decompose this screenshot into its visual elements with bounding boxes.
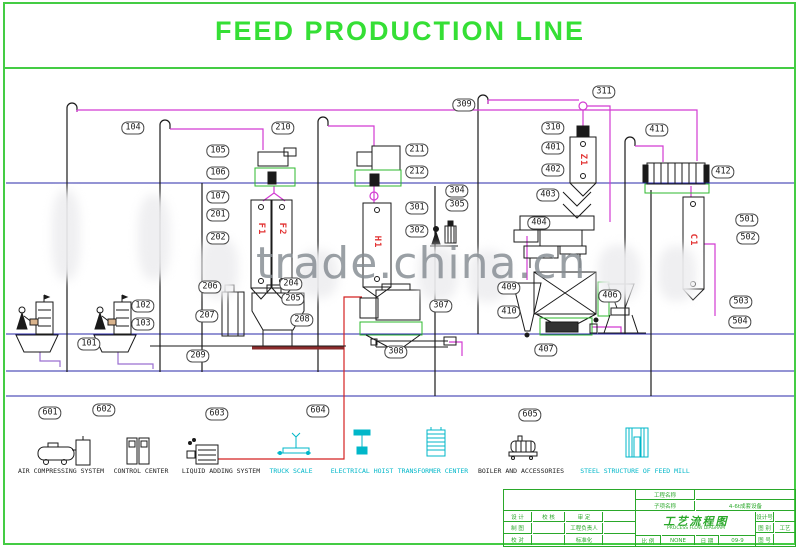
label-badge-211: 211 bbox=[405, 144, 428, 157]
sign-cell bbox=[533, 535, 565, 545]
sign-cell bbox=[604, 523, 635, 533]
label-badge-310: 310 bbox=[541, 122, 564, 135]
bin-tag-F1: F1 bbox=[256, 223, 266, 236]
label-badge-401: 401 bbox=[541, 142, 564, 155]
equipment-label-electrical-hoist: ELECTRICAL HOIST bbox=[331, 467, 394, 475]
page-title: FEED PRODUCTION LINE bbox=[0, 16, 800, 47]
label-badge-407: 407 bbox=[534, 344, 557, 357]
label-badge-308: 308 bbox=[384, 346, 407, 359]
label-badge-105: 105 bbox=[206, 145, 229, 158]
electrical-hoist-icon bbox=[354, 430, 370, 454]
boiler-icon bbox=[509, 436, 537, 460]
grinder-211 bbox=[355, 146, 401, 186]
liquid-adding-icon bbox=[187, 439, 218, 465]
bin-tag-Z1: Z1 bbox=[578, 154, 588, 167]
label-badge-503: 503 bbox=[729, 296, 752, 309]
bin-tag-F2: F2 bbox=[277, 223, 287, 236]
blur-smudge bbox=[52, 190, 80, 280]
sign-cell: 校 对 bbox=[504, 535, 532, 545]
label-badge-207: 207 bbox=[195, 310, 218, 323]
equipment-label-air-compressing-system: AIR COMPRESSING SYSTEM bbox=[18, 467, 104, 475]
label-badge-104: 104 bbox=[121, 122, 144, 135]
drawing-sheet: FEED PRODUCTION LINE trade.china.cn 1011… bbox=[0, 0, 800, 552]
conveyor-209 bbox=[150, 346, 346, 348]
label-badge-304: 304 bbox=[445, 185, 468, 198]
label-badge-103: 103 bbox=[131, 318, 154, 331]
bin-tag-C1: C1 bbox=[688, 234, 698, 247]
label-badge-602: 602 bbox=[92, 404, 115, 417]
label-badge-311: 311 bbox=[592, 86, 615, 99]
sign-cell bbox=[604, 512, 635, 522]
title-block: 设 计校 核审 定制 图工程负责人校 对标准化 工程名称 子项名称 4-6t成套… bbox=[503, 489, 796, 547]
blur-smudge bbox=[418, 246, 458, 301]
label-badge-210: 210 bbox=[271, 122, 294, 135]
equipment-label-truck-scale: TRUCK SCALE bbox=[269, 467, 312, 475]
label-badge-412: 412 bbox=[711, 166, 734, 179]
sign-cell bbox=[604, 535, 635, 545]
bin-h1 bbox=[363, 203, 391, 297]
equipment-label-steel-structure-of-feed-mill: STEEL STRUCTURE OF FEED MILL bbox=[580, 467, 690, 475]
label-badge-212: 212 bbox=[405, 166, 428, 179]
category-label: 图 别 bbox=[756, 523, 774, 533]
label-badge-309: 309 bbox=[452, 99, 475, 112]
titleblock-sign-area: 设 计校 核审 定制 图工程负责人校 对标准化 bbox=[504, 490, 636, 546]
subitem-label: 子项名称 bbox=[636, 501, 695, 511]
drawing-title-en: PROCESS FLOW DIAGRAM bbox=[636, 526, 756, 531]
label-badge-301: 301 bbox=[405, 202, 428, 215]
label-badge-403: 403 bbox=[536, 189, 559, 202]
label-badge-603: 603 bbox=[205, 408, 228, 421]
scale-value: NONE bbox=[662, 535, 695, 545]
blur-smudge bbox=[658, 246, 696, 301]
label-badge-208: 208 bbox=[290, 314, 313, 327]
equipment-label-liquid-adding-system: LIQUID ADDING SYSTEM bbox=[182, 467, 260, 475]
label-badge-201: 201 bbox=[206, 209, 229, 222]
label-badge-504: 504 bbox=[728, 316, 751, 329]
sign-cell: 制 图 bbox=[504, 523, 532, 533]
label-badge-605: 605 bbox=[518, 409, 541, 422]
sheet-no-label: 图 号 bbox=[756, 534, 774, 545]
label-badge-601: 601 bbox=[38, 407, 61, 420]
design-no-value bbox=[775, 512, 795, 522]
cleaner-304-305 bbox=[430, 221, 458, 246]
sheet-no-value bbox=[775, 534, 795, 545]
label-badge-402: 402 bbox=[541, 164, 564, 177]
label-badge-406: 406 bbox=[598, 290, 621, 303]
sign-cell: 校 核 bbox=[533, 512, 565, 522]
label-badge-202: 202 bbox=[206, 232, 229, 245]
label-badge-411: 411 bbox=[645, 124, 668, 137]
label-badge-502: 502 bbox=[736, 232, 759, 245]
design-no-label: 设计号 bbox=[756, 512, 774, 522]
label-badge-501: 501 bbox=[735, 214, 758, 227]
label-badge-302: 302 bbox=[405, 225, 428, 238]
feeder-210 bbox=[255, 148, 296, 186]
label-badge-107: 107 bbox=[206, 191, 229, 204]
transformer-center-icon bbox=[427, 427, 445, 456]
date-label: 日 期 bbox=[696, 535, 719, 545]
label-badge-106: 106 bbox=[206, 167, 229, 180]
intake-station-1 bbox=[16, 295, 58, 352]
project-name-label: 工程名称 bbox=[636, 490, 695, 500]
sign-cell: 标准化 bbox=[566, 535, 603, 545]
label-badge-102: 102 bbox=[131, 300, 154, 313]
date-value: 09-9 bbox=[720, 535, 755, 545]
bin-tag-H1: H1 bbox=[372, 236, 382, 249]
label-badge-305: 305 bbox=[445, 199, 468, 212]
subitem-value: 4-6t成套设备 bbox=[696, 501, 795, 511]
sign-cell: 设 计 bbox=[504, 512, 532, 522]
intake-lines-purple bbox=[40, 352, 153, 369]
blur-smudge bbox=[298, 250, 338, 298]
label-badge-409: 409 bbox=[497, 282, 520, 295]
equipment-label-control-center: CONTROL CENTER bbox=[114, 467, 169, 475]
label-badge-204: 204 bbox=[279, 278, 302, 291]
scale-label: 比 例 bbox=[636, 535, 661, 545]
flow-lines-magenta bbox=[77, 100, 715, 356]
category-value: 工艺 bbox=[775, 523, 795, 533]
label-badge-307: 307 bbox=[429, 300, 452, 313]
sign-cell: 审 定 bbox=[566, 512, 603, 522]
sign-cell bbox=[533, 523, 565, 533]
drum-screener-412 bbox=[643, 163, 709, 193]
blur-smudge bbox=[138, 195, 170, 280]
project-name-value bbox=[696, 490, 795, 500]
label-badge-604: 604 bbox=[306, 405, 329, 418]
label-badge-209: 209 bbox=[186, 350, 209, 363]
label-badge-404: 404 bbox=[527, 217, 550, 230]
sign-cell: 工程负责人 bbox=[566, 523, 603, 533]
steel-structure-icon bbox=[626, 428, 648, 457]
label-badge-101: 101 bbox=[77, 338, 100, 351]
label-badge-205: 205 bbox=[281, 293, 304, 306]
control-center-icon bbox=[127, 438, 149, 464]
truck-scale-icon bbox=[277, 433, 311, 455]
air-compressor-icon bbox=[38, 436, 90, 465]
equipment-label-transformer-center: TRANSFORMER CENTER bbox=[398, 467, 468, 475]
equipment-label-boiler-and-accessories: BOILER AND ACCESSORIES bbox=[478, 467, 564, 475]
label-badge-410: 410 bbox=[497, 306, 520, 319]
label-badge-206: 206 bbox=[198, 281, 221, 294]
